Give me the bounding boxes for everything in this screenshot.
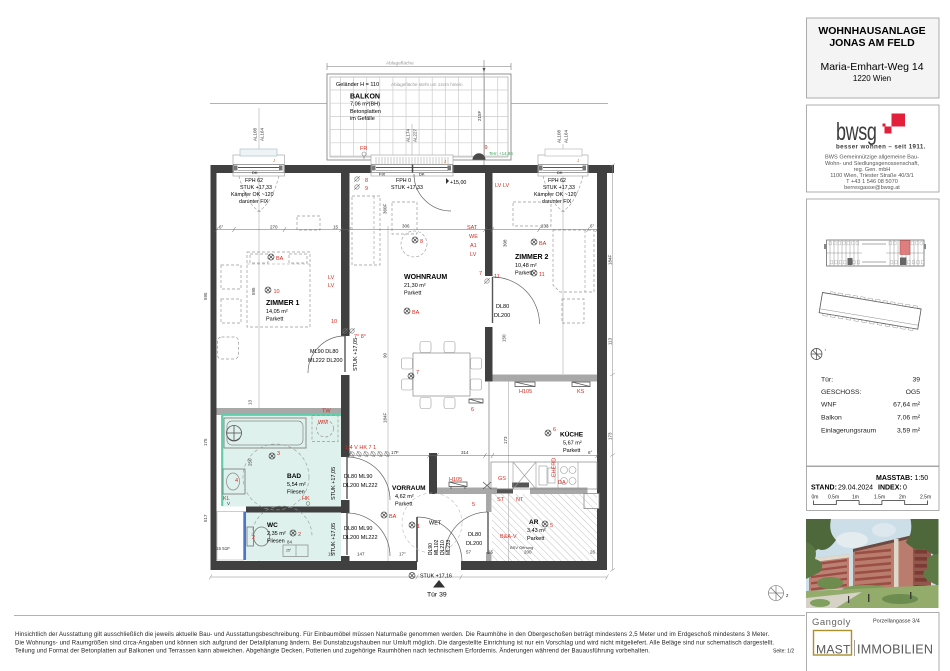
svg-text:Maria-Emhart-Weg 14: Maria-Emhart-Weg 14	[820, 61, 923, 73]
svg-text:15: 15	[333, 225, 339, 230]
svg-text:595: 595	[203, 292, 208, 300]
svg-text:KS: KS	[577, 389, 585, 395]
svg-text:DL200: DL200	[466, 541, 482, 547]
svg-text:STUK +17,33: STUK +17,33	[240, 185, 272, 191]
svg-text:WOHNRAUM: WOHNRAUM	[404, 274, 447, 281]
svg-text:Parkett: Parkett	[515, 271, 533, 277]
svg-text:DL80 ML90: DL80 ML90	[344, 474, 372, 480]
svg-text:0: 0	[903, 485, 907, 492]
svg-text:173: 173	[503, 436, 508, 444]
svg-text:Kämpfer OK ~120: Kämpfer OK ~120	[534, 192, 577, 198]
svg-text:10,48 m²: 10,48 m²	[515, 263, 537, 269]
svg-text:MAST: MAST	[816, 643, 851, 657]
svg-text:AL108: AL108	[557, 129, 562, 143]
svg-text:4: 4	[235, 478, 238, 484]
svg-text:Tür:: Tür:	[821, 377, 833, 384]
svg-text:BA: BA	[389, 514, 397, 520]
svg-text:ML90 DL80: ML90 DL80	[310, 349, 338, 355]
svg-text:DL80: DL80	[468, 532, 481, 538]
svg-text:11: 11	[494, 274, 500, 280]
svg-text:Teilung und Format der Betonpl: Teilung und Format der Betonplatten auf …	[15, 648, 650, 655]
svg-text:15: 15	[328, 552, 334, 557]
svg-text:ST: ST	[497, 497, 505, 503]
svg-text:BA: BA	[412, 310, 420, 316]
svg-text:0m: 0m	[812, 495, 819, 501]
svg-text:J: J	[273, 158, 275, 163]
svg-text:WC: WC	[267, 522, 278, 529]
svg-text:270: 270	[270, 225, 278, 230]
svg-text:H105: H105	[519, 389, 532, 395]
svg-text:Seite: 1/2: Seite: 1/2	[773, 649, 794, 655]
svg-text:WM: WM	[318, 420, 328, 426]
svg-text:FR: FR	[360, 146, 367, 152]
svg-text:OG5: OG5	[906, 389, 921, 396]
svg-text:67,64 m²: 67,64 m²	[893, 402, 921, 409]
svg-text:84: 84	[287, 540, 293, 545]
svg-text:LV: LV	[328, 275, 335, 281]
svg-text:8: 8	[365, 178, 368, 184]
svg-text:6: 6	[553, 427, 556, 433]
svg-text:LV LV: LV LV	[495, 183, 509, 189]
svg-text:J: J	[577, 158, 579, 163]
svg-text:AL108: AL108	[253, 127, 258, 141]
svg-text:57: 57	[466, 550, 472, 555]
svg-text:AR: AR	[529, 519, 539, 526]
svg-text:7: 7	[479, 271, 482, 277]
svg-text:9: 9	[365, 186, 368, 192]
svg-text:1m: 1m	[852, 495, 859, 501]
svg-text:STUK +17,16: STUK +17,16	[420, 574, 452, 580]
svg-text:Porzellangasse 3/4: Porzellangasse 3/4	[873, 619, 920, 625]
svg-text:ML233: ML233	[446, 539, 452, 555]
svg-text:AL164: AL164	[564, 129, 569, 143]
svg-text:7: 7	[416, 370, 419, 376]
svg-text:Gangoly: Gangoly	[812, 617, 851, 628]
svg-text:Einlagerungsraum: Einlagerungsraum	[821, 428, 876, 435]
svg-text:215F: 215F	[477, 110, 482, 121]
svg-text:Parkett: Parkett	[563, 448, 581, 454]
svg-text:+15,00: +15,00	[450, 180, 466, 186]
svg-text:HK: HK	[302, 496, 310, 502]
svg-text:BAD: BAD	[287, 473, 301, 480]
svg-text:150: 150	[502, 334, 507, 342]
svg-text:reg. Gen. mbH: reg. Gen. mbH	[854, 167, 891, 173]
svg-text:17F: 17F	[391, 450, 399, 455]
svg-text:TW: TW	[322, 409, 331, 415]
svg-text:1220 Wien: 1220 Wien	[853, 74, 891, 83]
svg-text:Terr. +14,86: Terr. +14,86	[489, 151, 513, 156]
svg-text:EHERD: EHERD	[552, 458, 558, 477]
svg-text:GESCHOSS:: GESCHOSS:	[821, 389, 862, 396]
svg-text:SAT: SAT	[467, 225, 478, 231]
svg-text:MASSTAB:: MASSTAB:	[876, 475, 912, 482]
svg-text:8: 8	[420, 239, 423, 245]
svg-text:FPH 62: FPH 62	[548, 178, 566, 184]
svg-text:5,67 m²: 5,67 m²	[563, 441, 582, 447]
svg-text:2m: 2m	[899, 495, 906, 501]
svg-text:Tür 39: Tür 39	[427, 592, 447, 599]
svg-text:6: 6	[471, 407, 474, 413]
svg-text:DL200 ML222: DL200 ML222	[343, 483, 378, 489]
svg-text:BWS Gemeinnützige allgemeine B: BWS Gemeinnützige allgemeine Bau-	[825, 155, 919, 161]
svg-text:KÜCHE: KÜCHE	[560, 430, 584, 439]
svg-text:7,06 m²(BH): 7,06 m²(BH)	[350, 102, 380, 108]
svg-text:DA: DA	[558, 480, 566, 486]
svg-text:1100 Wien, Triester Straße 40/: 1100 Wien, Triester Straße 40/3/1	[830, 173, 914, 179]
svg-text:STUK +17,33: STUK +17,33	[543, 185, 575, 191]
svg-text:39: 39	[912, 377, 920, 384]
svg-text:6°: 6°	[590, 224, 595, 229]
svg-text:21,30 m²: 21,30 m²	[404, 283, 426, 289]
svg-text:besser wohnen – seit 1911.: besser wohnen – seit 1911.	[836, 144, 926, 151]
svg-text:10: 10	[331, 319, 337, 325]
svg-text:250: 250	[248, 458, 253, 466]
svg-text:2: 2	[298, 532, 301, 538]
svg-text:AL164: AL164	[260, 127, 265, 141]
svg-text:2,35 m²: 2,35 m²	[267, 531, 286, 537]
svg-text:WNF: WNF	[821, 402, 836, 409]
svg-text:1,4 V HK 7 1: 1,4 V HK 7 1	[345, 445, 376, 451]
svg-text:STUK +17,33: STUK +17,33	[391, 185, 423, 191]
svg-text:314: 314	[461, 450, 469, 455]
svg-text:15 51F: 15 51F	[216, 546, 230, 551]
svg-text:175: 175	[203, 438, 208, 446]
svg-text:90: 90	[383, 352, 388, 358]
svg-text:Die Wohnungs- und Raumgrößen s: Die Wohnungs- und Raumgrößen sind circa-…	[15, 640, 774, 646]
svg-text:ZIMMER 2: ZIMMER 2	[515, 254, 549, 261]
svg-text:IMMOBILIEN: IMMOBILIEN	[857, 643, 933, 657]
svg-text:17°: 17°	[399, 552, 406, 557]
svg-text:FPH 62: FPH 62	[245, 178, 263, 184]
svg-text:°: °	[825, 349, 827, 354]
svg-text:FIX: FIX	[379, 172, 386, 177]
svg-text:DL80: DL80	[496, 304, 509, 310]
svg-text:Ablagefläche: Ablagefläche	[386, 61, 414, 67]
svg-text:STUK +17,05: STUK +17,05	[353, 338, 359, 371]
svg-text:184F: 184F	[383, 412, 388, 423]
svg-text:3,43 m²: 3,43 m²	[527, 528, 546, 534]
svg-text:Parkett: Parkett	[527, 536, 545, 542]
svg-text:BALKON: BALKON	[350, 94, 380, 101]
svg-text:DL80 ML90: DL80 ML90	[344, 526, 372, 532]
svg-text:darunter FIX: darunter FIX	[542, 199, 572, 205]
svg-text:Parkett: Parkett	[395, 502, 413, 508]
svg-text:5: 5	[550, 523, 553, 529]
svg-text:9: 9	[485, 145, 488, 151]
svg-text:JONAS AM FELD: JONAS AM FELD	[829, 37, 915, 49]
svg-text:GS: GS	[498, 476, 506, 482]
svg-text:14,05 m²: 14,05 m²	[266, 309, 288, 315]
svg-text:Kämpfer OK ~120: Kämpfer OK ~120	[231, 192, 274, 198]
svg-text:595: 595	[251, 287, 256, 295]
svg-text:4,62 m²: 4,62 m²	[395, 494, 414, 500]
svg-text:bwsg: bwsg	[836, 117, 877, 146]
svg-text:WET: WET	[429, 521, 442, 527]
svg-text:0.5m: 0.5m	[828, 495, 839, 501]
svg-text:NT: NT	[516, 497, 524, 503]
svg-text:1.5m: 1.5m	[874, 495, 885, 501]
svg-text:V: V	[227, 501, 230, 506]
svg-text:LV: LV	[470, 252, 477, 258]
svg-text:306: 306	[402, 224, 410, 229]
svg-text:Wohn- und Siedlungsgenossensch: Wohn- und Siedlungsgenossenschaft,	[825, 161, 920, 167]
svg-text:VORRAUM: VORRAUM	[392, 485, 426, 492]
svg-text:T +43 1 546 08 5070: T +43 1 546 08 5070	[846, 179, 898, 185]
svg-text:29.04.2024: 29.04.2024	[838, 485, 873, 492]
svg-text:147: 147	[357, 552, 365, 557]
svg-text:2: 2	[252, 535, 255, 541]
svg-text:Balkon: Balkon	[821, 415, 842, 422]
svg-text:1:50: 1:50	[915, 475, 929, 482]
svg-text:113: 113	[608, 337, 613, 345]
svg-text:6°: 6°	[219, 225, 224, 230]
svg-text:STUK +17,05: STUK +17,05	[331, 467, 337, 500]
svg-text:10: 10	[274, 289, 280, 295]
svg-text:3,59 m²: 3,59 m²	[897, 428, 921, 435]
svg-text:B&A-V: B&A-V	[500, 534, 517, 540]
svg-text:233: 233	[541, 224, 549, 229]
svg-text:LV: LV	[328, 283, 335, 289]
svg-text:11: 11	[539, 272, 545, 278]
svg-text:6°: 6°	[588, 450, 593, 455]
svg-text:Fliesen: Fliesen	[287, 490, 305, 496]
svg-text:darunter FIX: darunter FIX	[239, 199, 269, 205]
svg-text:Parkett: Parkett	[404, 291, 422, 297]
svg-text:2.5m: 2.5m	[920, 495, 931, 501]
svg-text:DK: DK	[252, 170, 258, 175]
svg-text:Geländer H = 110: Geländer H = 110	[336, 82, 379, 88]
svg-text:DK: DK	[557, 170, 563, 175]
svg-text:25°: 25°	[286, 549, 292, 553]
svg-text:ML222 DL200: ML222 DL200	[308, 358, 343, 364]
svg-text:AL227: AL227	[413, 128, 418, 142]
svg-text:im Gefälle: im Gefälle	[350, 116, 375, 122]
svg-text:A1: A1	[470, 243, 477, 249]
svg-text:BA: BA	[539, 241, 547, 247]
svg-text:308: 308	[503, 239, 508, 247]
svg-text:WOHNHAUSANLAGE: WOHNHAUSANLAGE	[818, 25, 925, 37]
svg-text:INDEX:: INDEX:	[878, 485, 902, 492]
svg-text:10: 10	[487, 225, 493, 230]
svg-text:DL200 ML222: DL200 ML222	[343, 535, 378, 541]
svg-text:3: 3	[277, 451, 280, 457]
svg-text:200: 200	[524, 550, 532, 555]
svg-text:STAND:: STAND:	[811, 485, 837, 492]
svg-text:DL200: DL200	[494, 313, 510, 319]
svg-text:360F: 360F	[383, 203, 388, 214]
svg-text:7,06 m²: 7,06 m²	[897, 415, 921, 422]
svg-text:Ablagefläche steht um 14cm hin: Ablagefläche steht um 14cm hinein	[391, 82, 463, 87]
svg-text:Fliesen: Fliesen	[267, 539, 285, 545]
svg-text:DK: DK	[419, 172, 425, 177]
svg-text:5,54 m²: 5,54 m²	[287, 482, 306, 488]
svg-text:Hinsichtlich der Ausstattung g: Hinsichtlich der Ausstattung gilt aussch…	[15, 632, 770, 638]
svg-text:FPH 0: FPH 0	[396, 178, 411, 184]
svg-text:1: 1	[417, 524, 420, 530]
svg-text:J: J	[444, 159, 446, 164]
svg-text:15: 15	[488, 550, 494, 555]
svg-text:WE: WE	[469, 234, 478, 240]
svg-text:26: 26	[590, 550, 596, 555]
svg-text:Parkett: Parkett	[266, 317, 284, 323]
svg-text:184F: 184F	[608, 254, 613, 265]
svg-text:Betonplatten: Betonplatten	[350, 109, 381, 115]
svg-text:ZIMMER 1: ZIMMER 1	[266, 300, 300, 307]
svg-text:5: 5	[472, 502, 475, 508]
svg-text:AL174: AL174	[406, 128, 411, 142]
svg-text:517: 517	[203, 514, 208, 522]
svg-text:173: 173	[608, 432, 613, 440]
svg-text:13: 13	[248, 399, 253, 405]
svg-text:BA: BA	[276, 256, 284, 262]
svg-text:berresgasse@bwsg.at: berresgasse@bwsg.at	[844, 185, 900, 191]
